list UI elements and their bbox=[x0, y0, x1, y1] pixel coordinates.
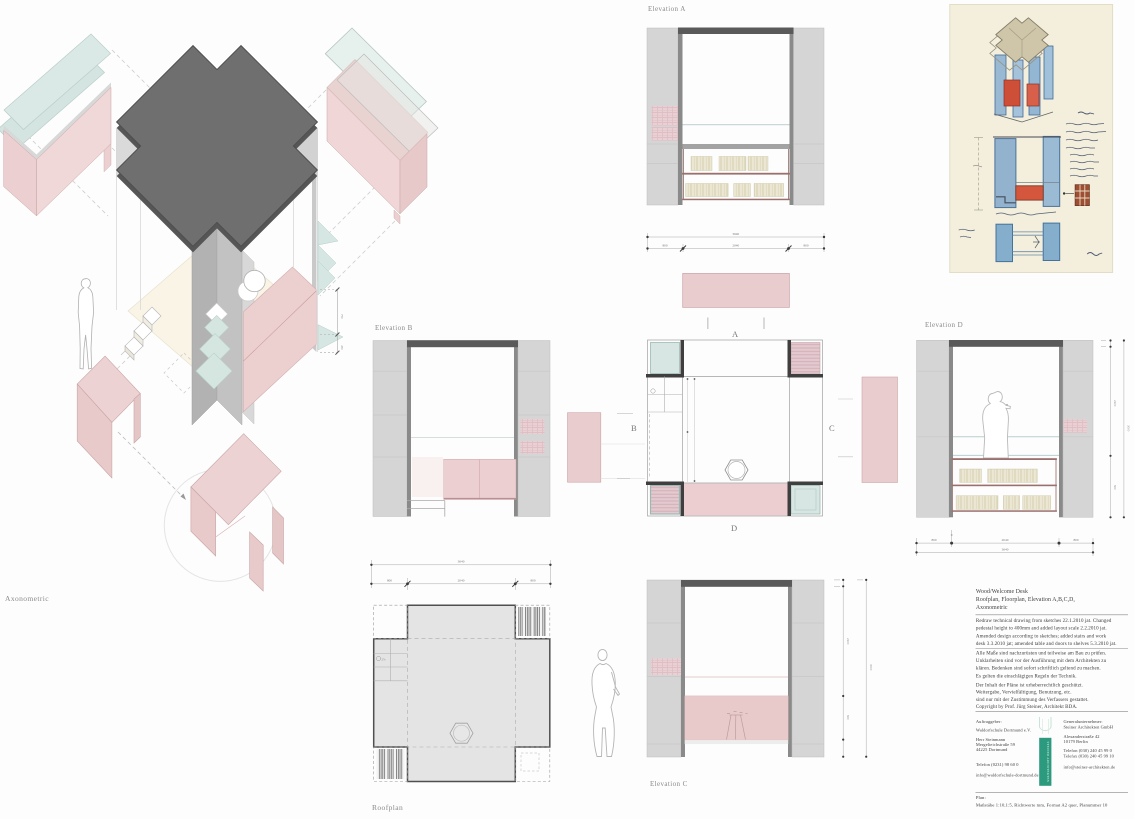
svg-text:800: 800 bbox=[662, 244, 667, 248]
svg-text:600: 600 bbox=[846, 715, 850, 720]
svg-text:450: 450 bbox=[340, 345, 344, 350]
svg-text:info@waldorfschule-dortmund.de: info@waldorfschule-dortmund.de bbox=[976, 772, 1039, 777]
svg-text:pedestal height to 400mm and a: pedestal height to 400mm and added layou… bbox=[976, 627, 1107, 632]
svg-text:Copyright by Prof. Jürg Steine: Copyright by Prof. Jürg Steiner, Archite… bbox=[976, 705, 1077, 710]
svg-text:Elevation A: Elevation A bbox=[648, 5, 686, 13]
svg-text:800: 800 bbox=[387, 579, 392, 583]
svg-text:C: C bbox=[829, 423, 835, 433]
svg-text:800: 800 bbox=[1073, 538, 1078, 542]
svg-text:44225 Dortmund: 44225 Dortmund bbox=[976, 747, 1008, 752]
svg-text:2400: 2400 bbox=[1113, 400, 1117, 407]
svg-text:Axonometric: Axonometric bbox=[5, 594, 49, 603]
svg-text:800: 800 bbox=[931, 538, 936, 542]
svg-text:Generalunternehmer:: Generalunternehmer: bbox=[1064, 719, 1103, 724]
svg-text:A: A bbox=[732, 329, 739, 339]
svg-text:3000: 3000 bbox=[1127, 425, 1131, 432]
svg-text:3640: 3640 bbox=[732, 232, 739, 236]
svg-text:750: 750 bbox=[340, 314, 344, 319]
svg-text:2040: 2040 bbox=[458, 579, 465, 583]
svg-text:3640: 3640 bbox=[1002, 547, 1009, 551]
svg-text:Der Inhalt der Pläne ist urheb: Der Inhalt der Pläne ist urheberrechtlic… bbox=[976, 683, 1083, 688]
svg-text:800: 800 bbox=[530, 579, 535, 583]
svg-text:800: 800 bbox=[803, 244, 808, 248]
svg-text:klären. Bedenken sind sofort s: klären. Bedenken sind sofort schriftlich… bbox=[976, 667, 1101, 672]
svg-text:Unklarheiten sind vor der Ausf: Unklarheiten sind vor der Ausführung mit… bbox=[976, 659, 1107, 664]
svg-text:2040: 2040 bbox=[1002, 538, 1009, 542]
svg-text:2400: 2400 bbox=[846, 638, 850, 645]
svg-text:D: D bbox=[731, 523, 737, 533]
svg-text:Telefon (0231) 98 60 0: Telefon (0231) 98 60 0 bbox=[976, 762, 1019, 767]
svg-text:Steiner Architekten GmbH: Steiner Architekten GmbH bbox=[1064, 725, 1114, 730]
svg-text:10179 Berlin: 10179 Berlin bbox=[1064, 739, 1089, 744]
svg-text:desk 3.3.2010 jat; amended tab: desk 3.3.2010 jat; amended table and doo… bbox=[976, 642, 1117, 647]
svg-text:Roofplan, Floorplan, Elevation: Roofplan, Floorplan, Elevation A,B,C,D, bbox=[976, 596, 1076, 603]
svg-text:Telefax (030) 240 45 99 10: Telefax (030) 240 45 99 10 bbox=[1064, 754, 1115, 759]
svg-text:Telefon (030) 240 45 99 0: Telefon (030) 240 45 99 0 bbox=[1064, 748, 1113, 753]
svg-text:Auftraggeber:: Auftraggeber: bbox=[976, 719, 1002, 724]
svg-text:Es gelten die einschlägigen Re: Es gelten die einschlägigen Regeln der T… bbox=[976, 674, 1077, 679]
svg-text:Elevation C: Elevation C bbox=[650, 780, 688, 788]
svg-text:3000: 3000 bbox=[869, 664, 873, 671]
svg-text:Axonometric: Axonometric bbox=[976, 605, 1008, 611]
svg-text:Waldorfschule Dortmund e.V.: Waldorfschule Dortmund e.V. bbox=[976, 728, 1031, 733]
svg-text:Maßstäbe 1:10,1:5, Richtwerte: Maßstäbe 1:10,1:5, Richtwerte mm, Format… bbox=[976, 802, 1108, 808]
svg-text:Wood/Welcome Desk: Wood/Welcome Desk bbox=[976, 589, 1028, 595]
svg-text:Elevation B: Elevation B bbox=[375, 324, 413, 332]
svg-text:Plan:: Plan: bbox=[976, 795, 986, 800]
svg-text:0: 0 bbox=[951, 533, 953, 537]
svg-text:Redraw technical drawing from: Redraw technical drawing from sketches 2… bbox=[976, 619, 1112, 624]
svg-text:Elevation D: Elevation D bbox=[925, 321, 963, 329]
svg-text:info@steiner-architekten.de: info@steiner-architekten.de bbox=[1064, 764, 1116, 769]
svg-text:3640: 3640 bbox=[458, 560, 465, 564]
svg-text:Roofplan: Roofplan bbox=[372, 803, 403, 812]
svg-text:STEINER ARCHITEKTEN: STEINER ARCHITEKTEN bbox=[1046, 742, 1050, 783]
svg-text:2%: 2% bbox=[382, 658, 387, 662]
svg-text:2040: 2040 bbox=[732, 244, 739, 248]
svg-text:Weitergabe, Vervielfältigung,: Weitergabe, Vervielfältigung, Benutzung,… bbox=[976, 691, 1072, 696]
svg-text:sind nur mit der Zustimmung de: sind nur mit der Zustimmung des Verfasse… bbox=[976, 698, 1089, 703]
svg-text:Alle Maße sind nachzurüsten un: Alle Maße sind nachzurüsten und teilweis… bbox=[976, 651, 1106, 656]
svg-text:Amended design according to sk: Amended design according to sketches; ad… bbox=[976, 634, 1107, 639]
svg-text:B: B bbox=[631, 423, 637, 433]
svg-text:600: 600 bbox=[1113, 485, 1117, 490]
